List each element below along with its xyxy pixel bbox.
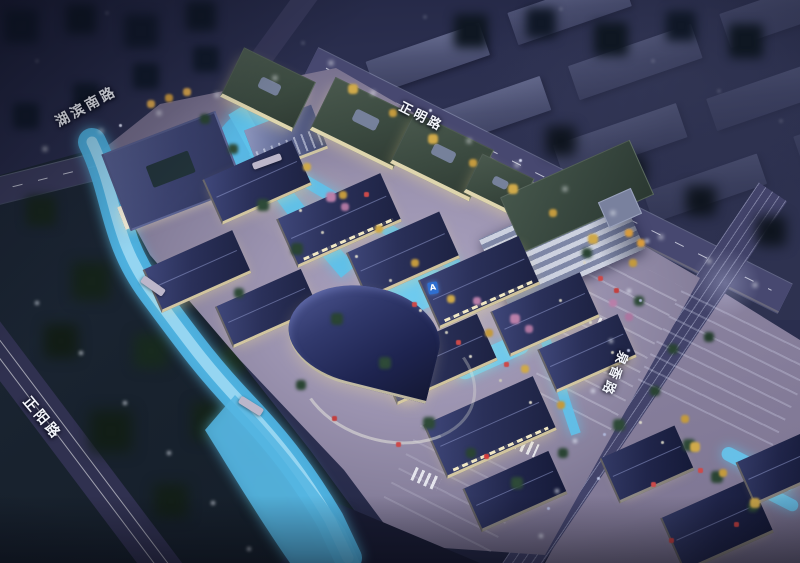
street-lights [0, 0, 2, 2]
plaza-a-marker: A [427, 281, 439, 295]
aerial-night-rendering: 湖滨南路 正明路 正阳路 泉香路 A [0, 0, 800, 563]
